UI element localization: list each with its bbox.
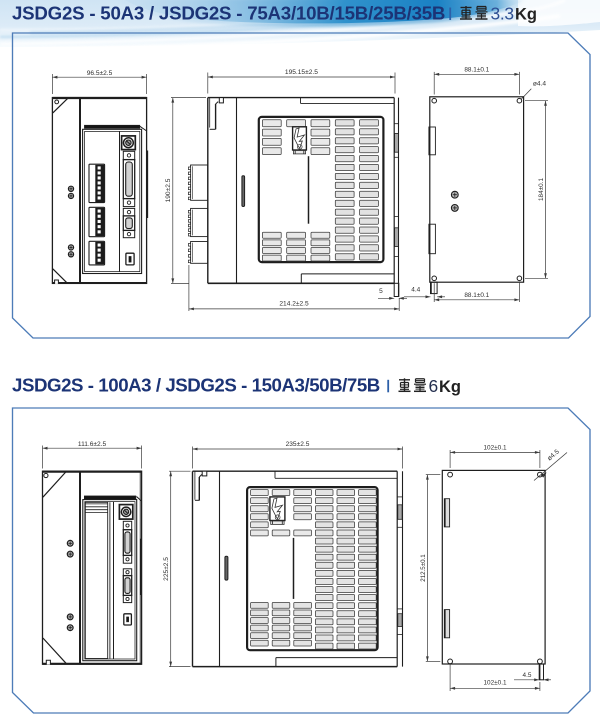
svg-text:Kg: Kg <box>515 6 537 24</box>
svg-text:111.6±2.5: 111.6±2.5 <box>78 441 107 448</box>
svg-text:4.5: 4.5 <box>523 672 532 679</box>
svg-text:96.5±2.5: 96.5±2.5 <box>87 70 113 77</box>
svg-text:212.5±0.1: 212.5±0.1 <box>420 554 427 582</box>
svg-text:ø4.4: ø4.4 <box>533 80 547 87</box>
svg-text:ø4.5: ø4.5 <box>546 448 561 462</box>
svg-text:5: 5 <box>379 288 383 295</box>
svg-text:88.1±0.1: 88.1±0.1 <box>464 292 489 299</box>
svg-text:190±2.5: 190±2.5 <box>165 178 172 202</box>
svg-text:4.4: 4.4 <box>411 286 420 293</box>
svg-text:Kg: Kg <box>439 378 461 396</box>
svg-text:184±0.1: 184±0.1 <box>538 178 545 201</box>
svg-text:JSDG2S - 50A3 / JSDG2S - 75A3/: JSDG2S - 50A3 / JSDG2S - 75A3/10B/15B/25… <box>12 2 445 23</box>
svg-text:195.15±2.5: 195.15±2.5 <box>285 69 318 76</box>
svg-text:102±0.1: 102±0.1 <box>483 680 506 687</box>
svg-text:6: 6 <box>429 376 439 396</box>
svg-text:235±2.5: 235±2.5 <box>286 441 310 448</box>
svg-text:88.1±0.1: 88.1±0.1 <box>464 66 489 73</box>
svg-text:225±2.5: 225±2.5 <box>163 557 170 581</box>
svg-text:214.2±2.5: 214.2±2.5 <box>279 301 309 308</box>
svg-text:JSDG2S - 100A3 / JSDG2S - 150A: JSDG2S - 100A3 / JSDG2S - 150A3/50B/75B <box>12 375 380 396</box>
svg-text:3.3: 3.3 <box>491 4 514 24</box>
svg-text:102±0.1: 102±0.1 <box>483 445 506 452</box>
